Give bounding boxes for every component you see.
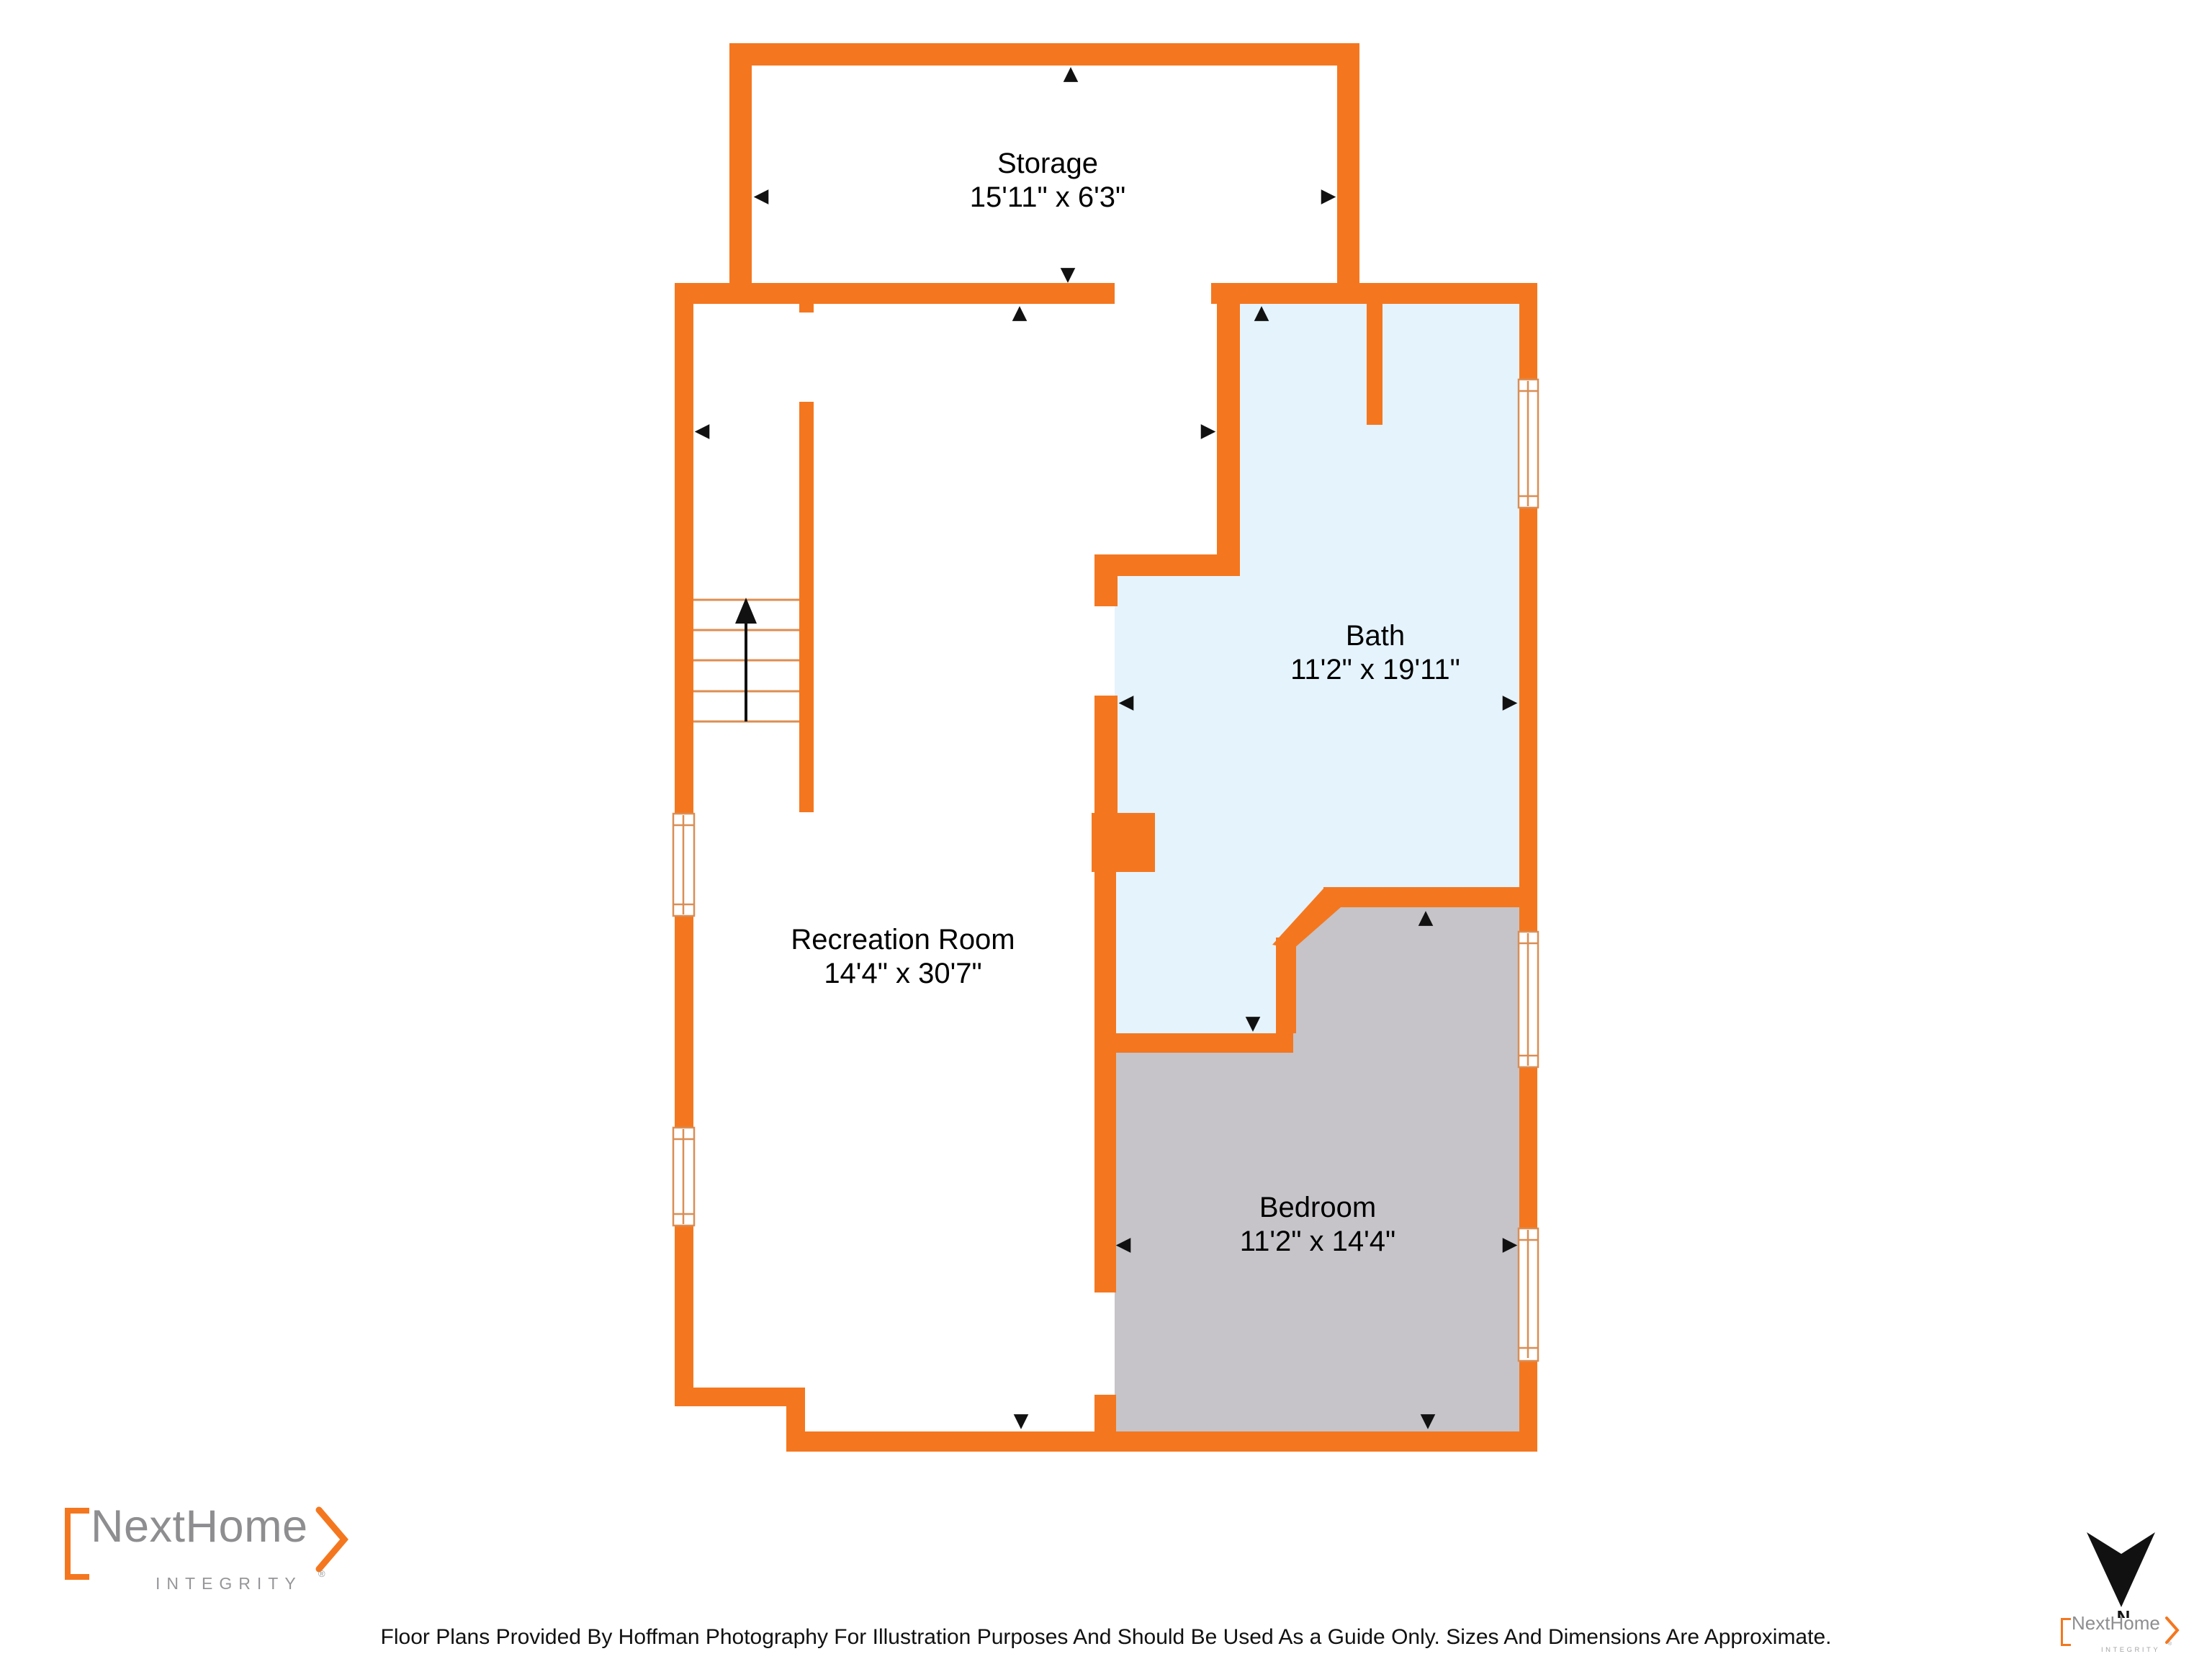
dim-arrow-left-icon: ◀ [1119,693,1134,712]
dim-arrow-down-icon: ▼ [1421,1411,1436,1431]
disclaimer-text: Floor Plans Provided By Hoffman Photogra… [0,1625,2212,1650]
dim-arrow-left-icon: ◀ [754,186,769,206]
dim-arrow-right-icon: ▶ [1503,1235,1518,1254]
wall-storage-left [729,43,752,302]
wall-bottom [786,1431,1537,1452]
room-label-bath: Bath 11'2" x 19'11" [1290,619,1460,687]
wall-bath-jog [1094,554,1240,576]
dim-arrow-right-icon: ▶ [1201,421,1216,441]
logo-chevron-icon [315,1506,350,1573]
wall-bath-partition [1367,302,1382,425]
wall-door-block [1092,813,1155,872]
room-label-bedroom: Bedroom 11'2" x 14'4" [1240,1191,1395,1259]
dim-arrow-up-icon: ▲ [1254,303,1269,323]
wall-top-left-segment [675,283,1115,304]
room-name: Bedroom [1240,1191,1395,1225]
window-right-bath [1519,379,1538,508]
dim-arrow-down-icon: ▼ [1246,1014,1261,1033]
room-dimensions: 11'2" x 14'4" [1240,1225,1395,1259]
logo-tagline: INTEGRITY [156,1574,302,1593]
logo-registered-mark: ® [318,1568,325,1579]
wall-bath-bottom [1094,1033,1293,1053]
dim-arrow-left-icon: ◀ [695,421,710,441]
window-left-2 [673,1128,694,1226]
window-left-1 [673,814,694,916]
wall-bath-left-lower [1094,696,1118,813]
room-name: Bath [1290,619,1460,653]
wall-bath-left-upper [1217,302,1240,576]
room-dimensions: 11'2" x 19'11" [1290,653,1460,687]
wall-bath-door-stub [1094,576,1118,606]
wall-storage-right [1337,43,1359,302]
wall-storage-top [729,43,1359,66]
dim-arrow-left-icon: ◀ [1116,1235,1131,1254]
room-name: Recreation Room [791,923,1015,957]
window-right-bedroom-1 [1519,932,1538,1067]
logo-brand-text: NextHome [91,1501,308,1552]
room-label-storage: Storage 15'11" x 6'3" [970,147,1125,215]
room-name: Storage [970,147,1125,181]
dim-arrow-up-icon: ▲ [1419,908,1434,927]
room-label-recreation: Recreation Room 14'4" x 30'7" [791,923,1015,991]
room-dimensions: 14'4" x 30'7" [791,957,1015,991]
wall-stairs-stub [799,302,814,313]
nexthome-logo: NextHome ® INTEGRITY [63,1503,366,1597]
compass-north-arrow-icon [2087,1532,2155,1607]
dim-arrow-down-icon: ▼ [1014,1411,1029,1431]
wall-chamfer-vertical [1276,938,1296,1033]
floor-plan [0,0,2212,1659]
wall-stairs [799,402,814,812]
dim-arrow-right-icon: ▶ [1321,186,1336,206]
dim-arrow-down-icon: ▼ [1061,265,1076,284]
dim-arrow-up-icon: ▲ [1012,303,1028,323]
logo-bracket-icon [65,1508,89,1580]
window-right-bedroom-2 [1519,1228,1538,1361]
dim-arrow-right-icon: ▶ [1503,693,1518,712]
wall-divider-lower [1094,1395,1116,1431]
wall-bedroom-top [1323,887,1519,907]
dim-arrow-up-icon: ▲ [1064,64,1079,84]
wall-step-horizontal [675,1388,805,1406]
wall-divider-upper [1094,872,1116,1292]
room-dimensions: 15'11" x 6'3" [970,181,1125,215]
